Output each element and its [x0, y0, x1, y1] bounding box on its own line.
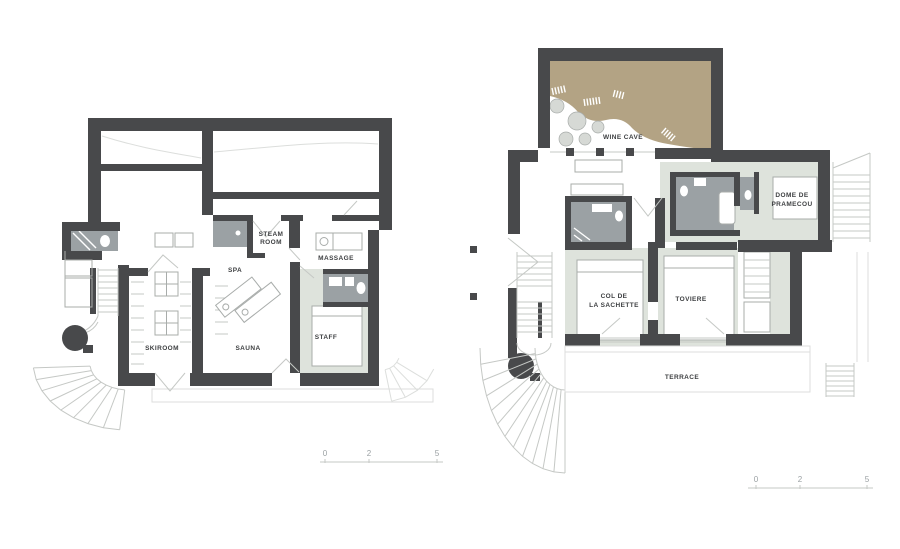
dome-de-pramecou-label-line1: DOME DE [775, 192, 808, 199]
sauna-loungers [216, 270, 281, 330]
sauna-label: SAUNA [235, 345, 260, 352]
skiroom-label: SKIROOM [145, 345, 179, 352]
east-upper-stair [833, 153, 870, 362]
left-scale-bar: 0 2 5 [320, 449, 443, 463]
left-floor-plan: SKIROOM SAUNA SPA STEAM ROOM MASSAGE STA… [33, 118, 443, 463]
skiroom-lockers [155, 272, 178, 335]
spa-cabinets [155, 233, 193, 247]
left-scale-0: 0 [323, 449, 328, 458]
toviere-label: TOVIERE [675, 296, 706, 303]
left-small-fan-stair [385, 358, 434, 401]
right-stair-core [508, 353, 540, 381]
corridor-closets [744, 252, 770, 332]
dome-de-pramecou-label-line2: PRAMECOU [771, 201, 812, 208]
east-lower-stair [826, 363, 854, 397]
right-scale-5: 5 [865, 475, 870, 484]
right-scale-2: 2 [798, 475, 803, 484]
left-stair-core [62, 325, 93, 353]
spa-label: SPA [228, 267, 242, 274]
staff-label: STAFF [315, 334, 337, 341]
col-de-la-sachette-label-line1: COL DE [601, 293, 628, 300]
floor-plan-sheet: SKIROOM SAUNA SPA STEAM ROOM MASSAGE STA… [0, 0, 900, 549]
massage-label: MASSAGE [318, 255, 354, 262]
massage-table [316, 233, 362, 250]
right-scale-0: 0 [754, 475, 759, 484]
left-scale-2: 2 [367, 449, 372, 458]
steam-room-label-line2: ROOM [260, 239, 282, 246]
right-floor-plan: WINE CAVE [470, 48, 873, 489]
left-interior-stair [65, 251, 118, 334]
floor-plans-drawing: SKIROOM SAUNA SPA STEAM ROOM MASSAGE STA… [0, 0, 900, 549]
right-scale-bar: 0 2 5 [748, 475, 873, 489]
left-fan-stair [33, 366, 124, 430]
terrace-label: TERRACE [665, 374, 699, 381]
steam-room-label-line1: STEAM [259, 231, 284, 238]
col-de-la-sachette-label-line2: LA SACHETTE [589, 302, 639, 309]
terrace-area: TERRACE [565, 346, 810, 392]
wine-cave-label: WINE CAVE [603, 134, 643, 141]
wine-cave-area: WINE CAVE [538, 48, 723, 159]
left-scale-5: 5 [435, 449, 440, 458]
